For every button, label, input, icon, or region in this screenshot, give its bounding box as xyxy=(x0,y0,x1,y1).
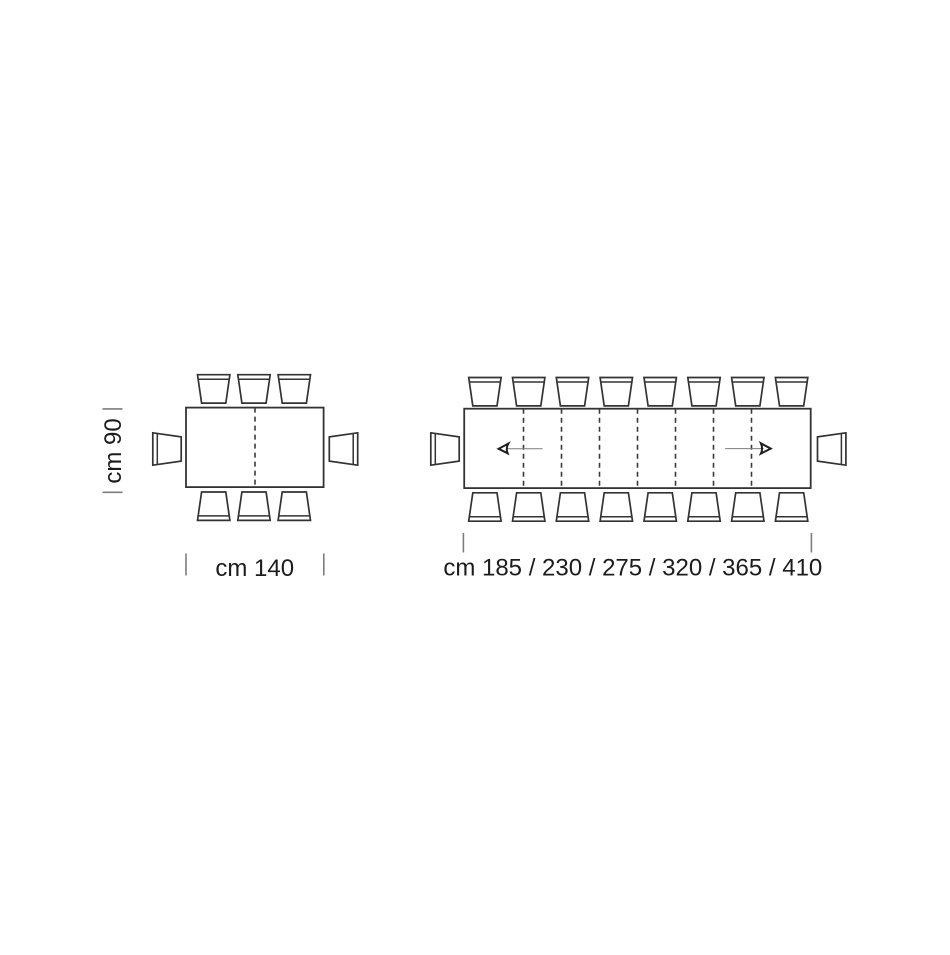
svg-text:cm 185 / 230 / 275 / 320 / 365: cm 185 / 230 / 275 / 320 / 365 / 410 xyxy=(443,555,822,582)
svg-text:cm 140: cm 140 xyxy=(215,555,294,582)
svg-text:cm 90: cm 90 xyxy=(100,418,127,483)
